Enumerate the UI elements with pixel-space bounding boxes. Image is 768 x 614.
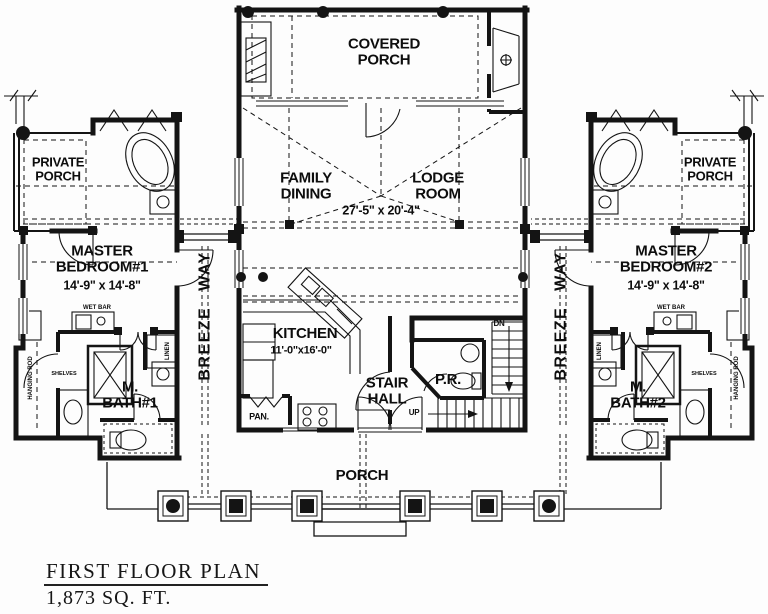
center-block (233, 6, 531, 436)
room-label-master-bedroom2: MASTER BEDROOM#2 (620, 243, 712, 274)
room-label-family-dining: FAMILY DINING (280, 170, 332, 201)
porch-columns (158, 491, 564, 521)
fixture-label-wet-bar-right: WET BAR (657, 305, 685, 311)
front-porch (107, 434, 661, 536)
room-label-porch: PORCH (336, 468, 389, 484)
porch-grill-fixture (493, 28, 519, 92)
room-label-covered-porch: COVERED PORCH (348, 36, 420, 67)
plan-title-underline (44, 584, 268, 586)
fixture-label-shelves-left: SHELVES (51, 372, 76, 378)
plan-title: FIRST FLOOR PLAN (46, 559, 261, 584)
fixture-label-wet-bar-left: WET BAR (83, 305, 111, 311)
room-label-private-porch-right: PRIVATE PORCH (684, 155, 736, 182)
room-label-breezeway-right: BREEZE WAY (554, 251, 571, 380)
plan-area: 1,873 SQ. FT. (46, 587, 171, 610)
floorplan-drawing (0, 0, 768, 614)
room-label-master-bedroom1: MASTER BEDROOM#1 (56, 243, 148, 274)
stairs-up-label: UP (409, 409, 420, 417)
fixture-label-linen-left: LINEN (165, 342, 171, 360)
room-label-pantry: PAN. (249, 412, 269, 421)
dim-label-master-bedroom2: 14'-9" x 14'-8" (627, 280, 704, 293)
fixture-label-linen-right: LINEN (597, 342, 603, 360)
center-interior-walls (241, 10, 523, 430)
room-label-powder-room: P.R. (435, 372, 461, 388)
room-label-private-porch-left: PRIVATE PORCH (32, 155, 84, 182)
room-label-master-bath1: M. BATH#1 (102, 379, 157, 410)
room-label-master-bath2: M. BATH#2 (610, 379, 665, 410)
stairs-down-label: DN (494, 320, 505, 328)
fixture-label-hanging-rod-right: HANGING ROD (734, 356, 740, 399)
fireplace-fixture (241, 22, 271, 96)
floor-plan-stage: COVERED PORCH PRIVATE PORCH PRIVATE PORC… (0, 0, 768, 614)
dim-label-master-bedroom1: 14'-9" x 14'-8" (63, 280, 140, 293)
dim-label-lodge: 27'-5" x 20'-4" (342, 205, 419, 218)
dim-label-kitchen: 11'-0"x16'-0" (270, 345, 331, 356)
room-label-kitchen: KITCHEN (273, 326, 338, 342)
fixture-label-shelves-right: SHELVES (691, 372, 716, 378)
room-label-lodge-room: LODGE ROOM (412, 170, 464, 201)
room-label-stair-hall: STAIR HALL (366, 375, 408, 406)
fixture-label-hanging-rod-left: HANGING ROD (28, 356, 34, 399)
room-label-breezeway-left: BREEZE WAY (198, 251, 215, 380)
